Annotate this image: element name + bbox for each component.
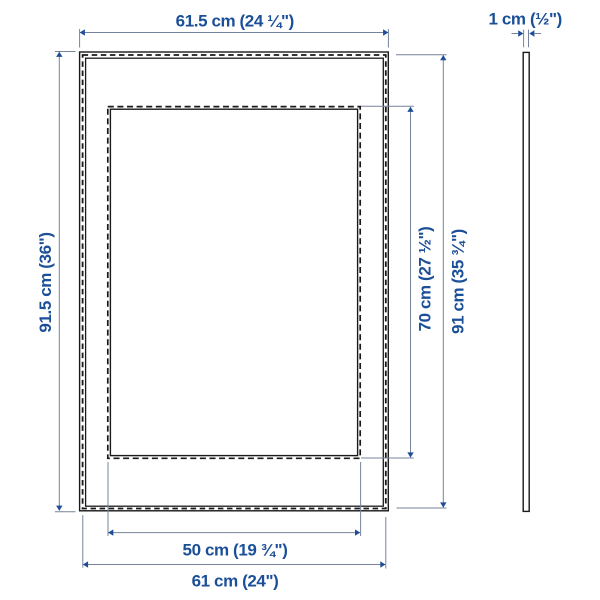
svg-text:70 cm (27 ½"): 70 cm (27 ½") (415, 227, 434, 332)
svg-text:50 cm (19 ¾"): 50 cm (19 ¾") (183, 541, 288, 560)
svg-text:91 cm (35 ¾"): 91 cm (35 ¾") (449, 229, 468, 334)
svg-text:1 cm (½"): 1 cm (½") (488, 10, 561, 29)
svg-text:61 cm (24"): 61 cm (24") (192, 571, 279, 590)
svg-text:91.5 cm (36"): 91.5 cm (36") (36, 232, 55, 332)
svg-text:61.5 cm (24 ¼"): 61.5 cm (24 ¼") (176, 11, 294, 30)
